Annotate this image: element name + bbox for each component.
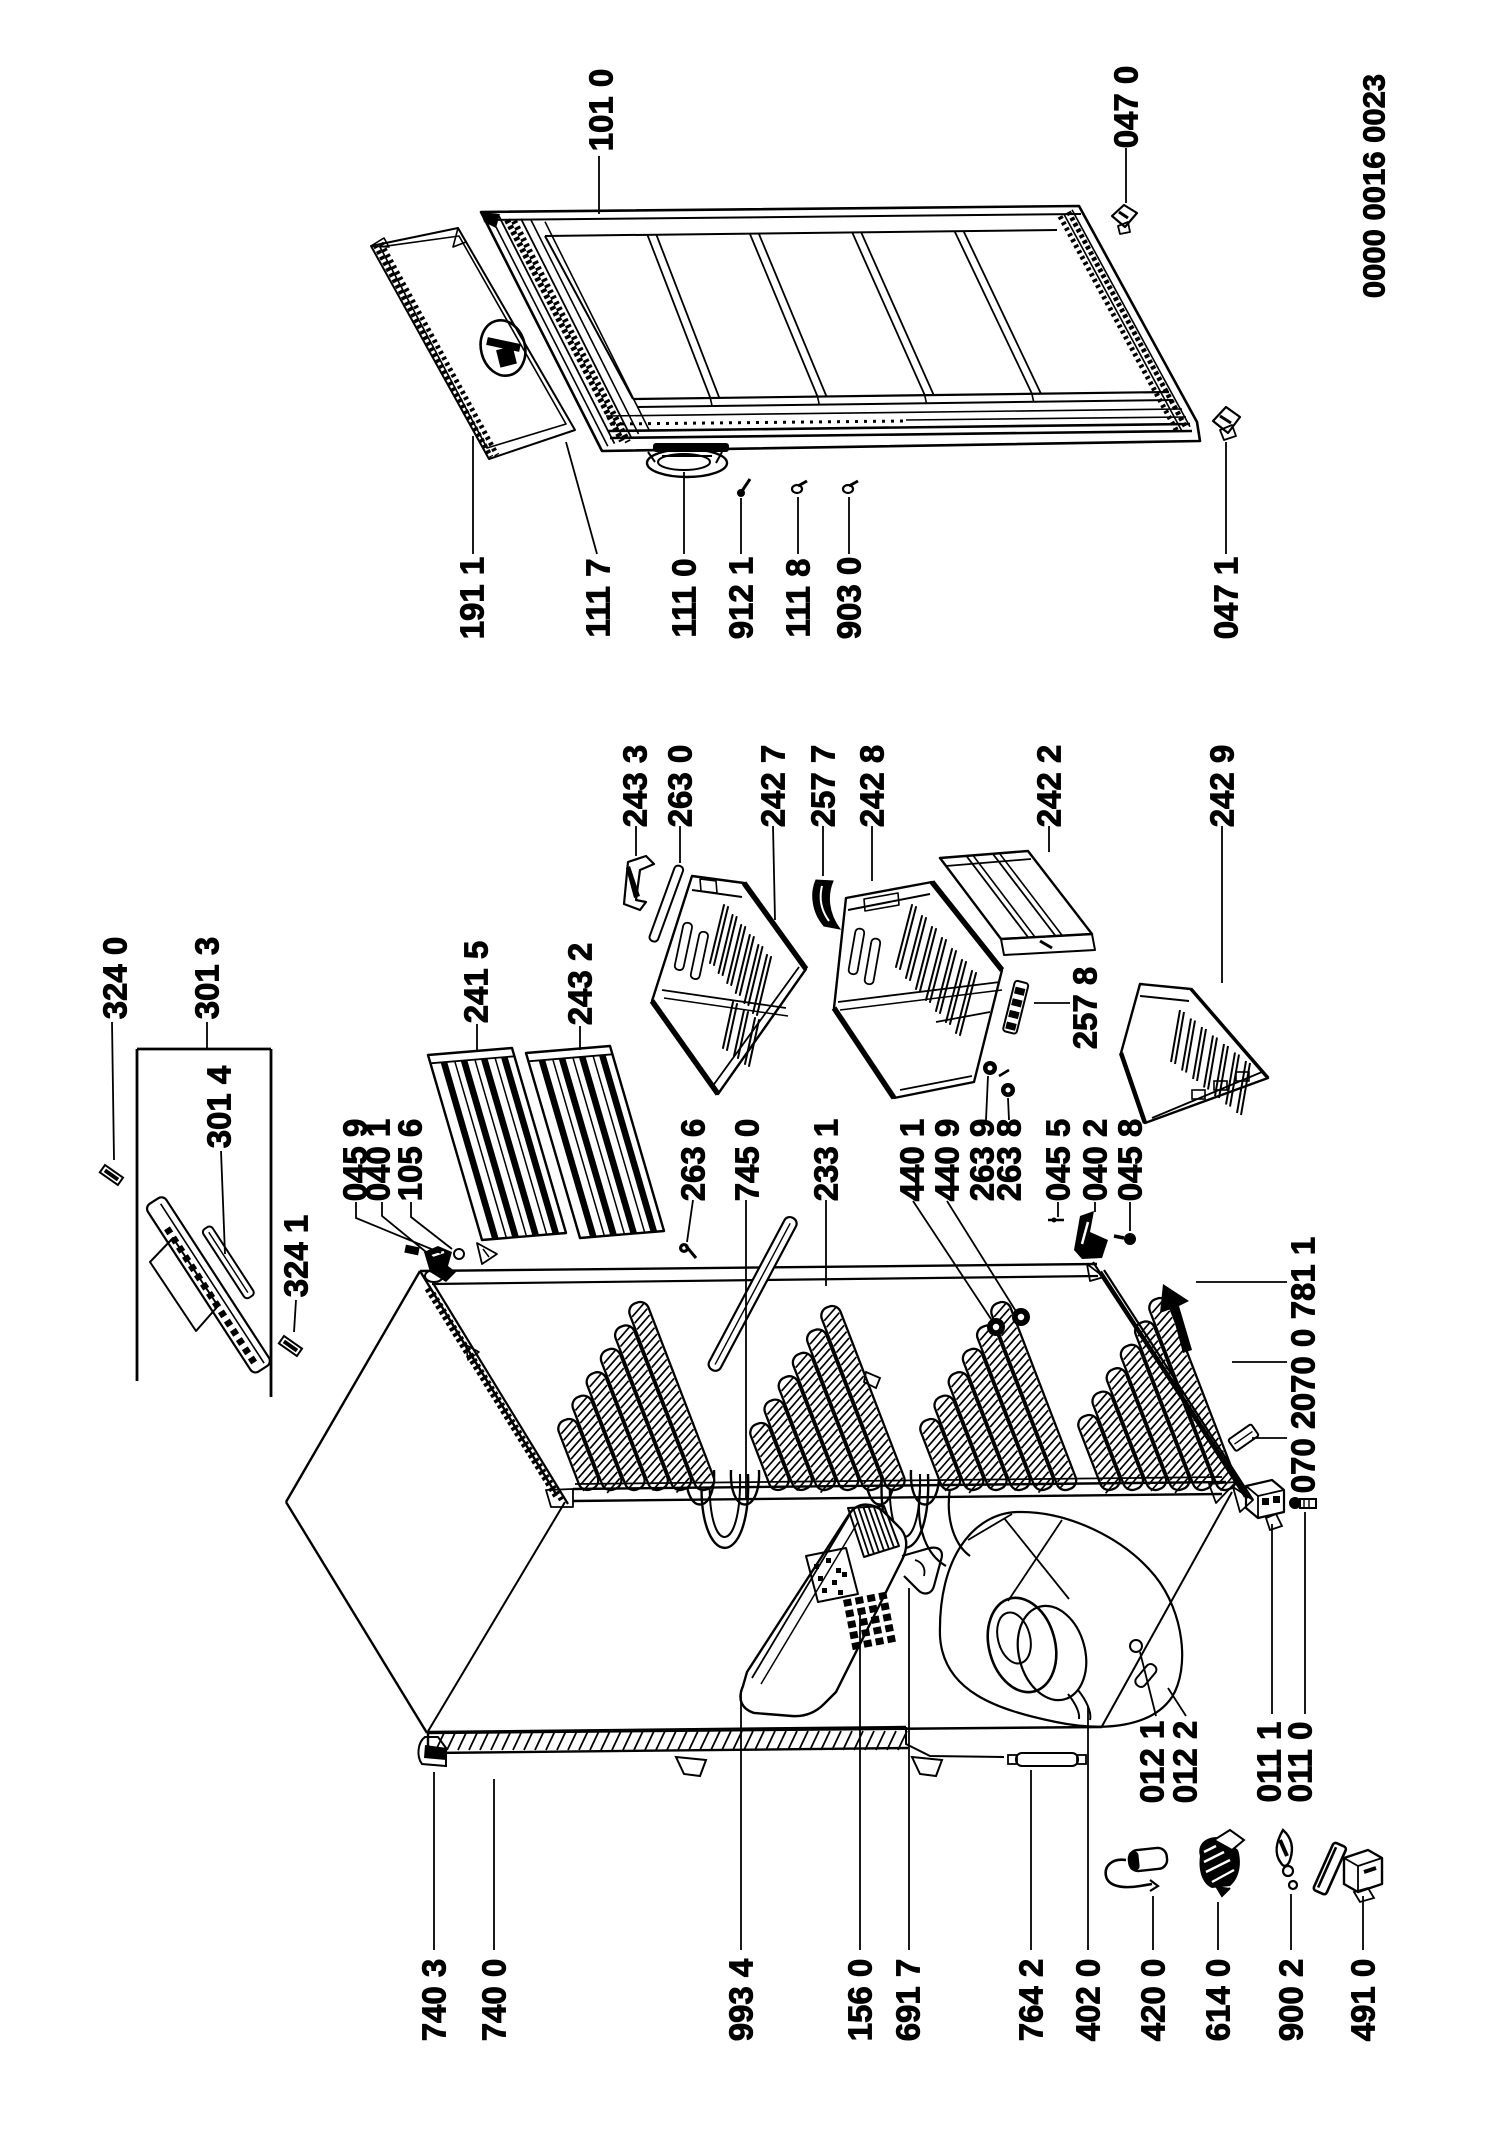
svg-text:324 0: 324 0 bbox=[97, 937, 134, 1020]
svg-text:740 3: 740 3 bbox=[416, 1959, 453, 2042]
svg-text:241 5: 241 5 bbox=[458, 941, 495, 1024]
svg-text:011 0: 011 0 bbox=[1282, 1722, 1319, 1803]
svg-text:691 7: 691 7 bbox=[890, 1959, 927, 2042]
svg-text:191 1: 191 1 bbox=[454, 557, 491, 640]
svg-text:242 2: 242 2 bbox=[1031, 745, 1068, 828]
svg-text:263 6: 263 6 bbox=[675, 1119, 712, 1202]
svg-text:040 2: 040 2 bbox=[1077, 1119, 1114, 1202]
svg-text:045 5: 045 5 bbox=[1040, 1119, 1077, 1202]
svg-text:105 6: 105 6 bbox=[392, 1119, 429, 1202]
svg-text:301 3: 301 3 bbox=[189, 937, 226, 1020]
svg-text:070 2: 070 2 bbox=[1285, 1411, 1322, 1494]
svg-text:243 3: 243 3 bbox=[617, 745, 654, 828]
svg-text:0000 0016 0023: 0000 0016 0023 bbox=[1357, 74, 1392, 298]
svg-text:070 0: 070 0 bbox=[1285, 1329, 1322, 1412]
svg-text:301 4: 301 4 bbox=[201, 1065, 238, 1148]
svg-text:111 0: 111 0 bbox=[666, 559, 703, 638]
svg-text:912 1: 912 1 bbox=[723, 557, 760, 640]
svg-text:045 8: 045 8 bbox=[1112, 1119, 1149, 1202]
svg-text:440 9: 440 9 bbox=[929, 1119, 966, 1202]
svg-text:263 8: 263 8 bbox=[991, 1119, 1028, 1202]
svg-text:156 0: 156 0 bbox=[842, 1959, 879, 2042]
svg-text:101 0: 101 0 bbox=[583, 69, 620, 152]
svg-text:233 1: 233 1 bbox=[808, 1119, 845, 1202]
svg-text:111 7: 111 7 bbox=[580, 559, 617, 638]
svg-text:012 1: 012 1 bbox=[1134, 1721, 1171, 1804]
svg-text:740 0: 740 0 bbox=[476, 1959, 513, 2042]
svg-text:781 1: 781 1 bbox=[1285, 1237, 1322, 1320]
svg-text:243 2: 243 2 bbox=[562, 943, 599, 1026]
svg-text:111 8: 111 8 bbox=[780, 559, 817, 638]
svg-text:745 0: 745 0 bbox=[729, 1119, 766, 1202]
svg-text:900 2: 900 2 bbox=[1273, 1959, 1310, 2042]
svg-text:242 7: 242 7 bbox=[755, 745, 792, 828]
svg-text:047 1: 047 1 bbox=[1208, 557, 1245, 640]
svg-text:047 0: 047 0 bbox=[1108, 66, 1145, 149]
svg-text:491 0: 491 0 bbox=[1345, 1959, 1382, 2042]
svg-text:242 8: 242 8 bbox=[854, 745, 891, 828]
svg-text:263 0: 263 0 bbox=[662, 745, 699, 828]
svg-text:257 7: 257 7 bbox=[805, 745, 842, 828]
svg-text:420 0: 420 0 bbox=[1135, 1959, 1172, 2042]
svg-text:242 9: 242 9 bbox=[1204, 745, 1241, 828]
svg-text:440 1: 440 1 bbox=[894, 1119, 931, 1202]
svg-text:257 8: 257 8 bbox=[1067, 967, 1104, 1050]
svg-text:764 2: 764 2 bbox=[1013, 1959, 1050, 2042]
svg-text:614 0: 614 0 bbox=[1200, 1959, 1237, 2042]
svg-text:993 4: 993 4 bbox=[723, 1958, 760, 2041]
svg-text:402 0: 402 0 bbox=[1070, 1959, 1107, 2042]
svg-text:012 2: 012 2 bbox=[1167, 1721, 1204, 1804]
svg-text:324 1: 324 1 bbox=[278, 1215, 315, 1298]
svg-text:903 0: 903 0 bbox=[831, 557, 868, 640]
